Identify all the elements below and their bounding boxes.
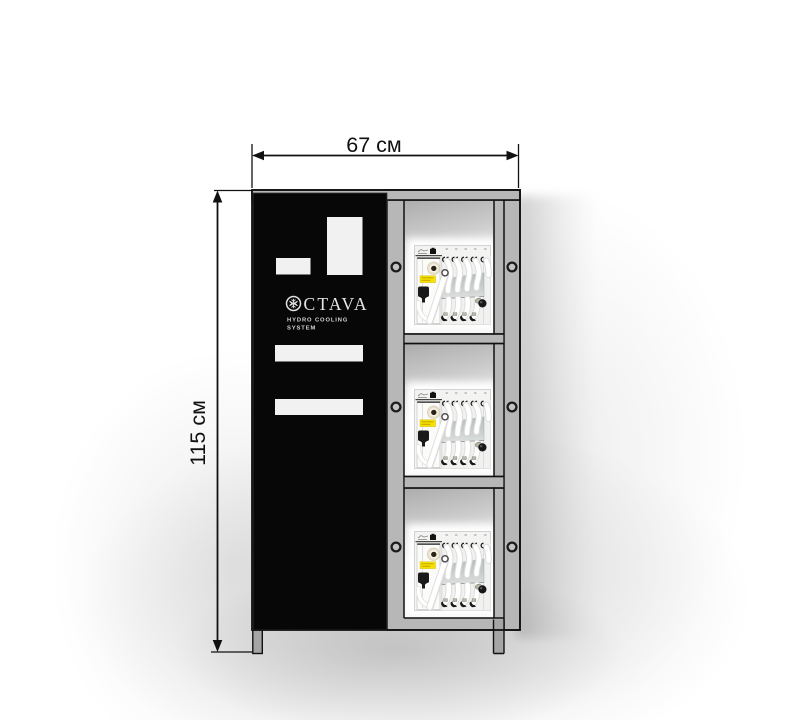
- svg-text:67 см: 67 см: [346, 133, 401, 157]
- svg-text:HYDRO COOLING: HYDRO COOLING: [287, 318, 348, 324]
- svg-text:SYSTEM: SYSTEM: [287, 326, 316, 332]
- svg-text:115 см: 115 см: [186, 400, 210, 466]
- svg-text:CTAVA: CTAVA: [304, 294, 369, 314]
